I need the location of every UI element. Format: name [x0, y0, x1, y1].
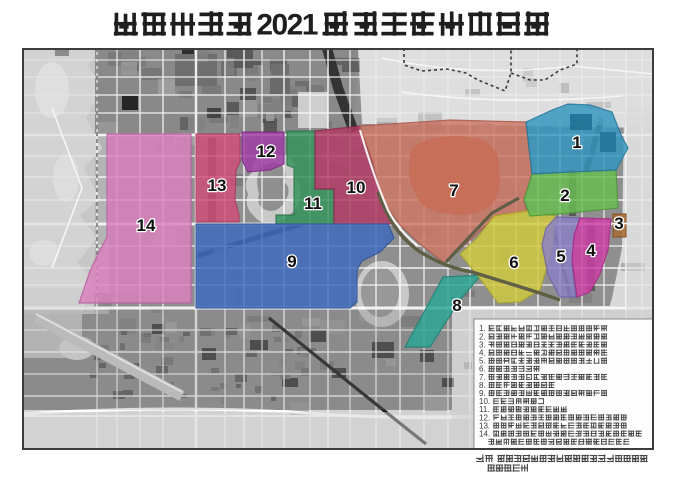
svg-text:7: 7: [449, 181, 458, 200]
svg-text:2021: 2021: [256, 9, 318, 42]
svg-text:11: 11: [304, 194, 322, 213]
svg-text:14: 14: [137, 216, 156, 235]
svg-text:13: 13: [208, 176, 227, 195]
svg-text:10: 10: [347, 178, 366, 197]
svg-text:8: 8: [452, 296, 461, 315]
svg-text:14.: 14.: [479, 430, 490, 439]
svg-text:12: 12: [257, 142, 276, 161]
svg-text:2: 2: [560, 186, 569, 205]
svg-text:6: 6: [509, 253, 518, 272]
svg-text:4: 4: [586, 241, 596, 260]
svg-text:9: 9: [287, 252, 296, 271]
svg-text:1: 1: [572, 133, 581, 152]
svg-text:3: 3: [614, 214, 623, 233]
svg-text:5: 5: [556, 247, 565, 266]
